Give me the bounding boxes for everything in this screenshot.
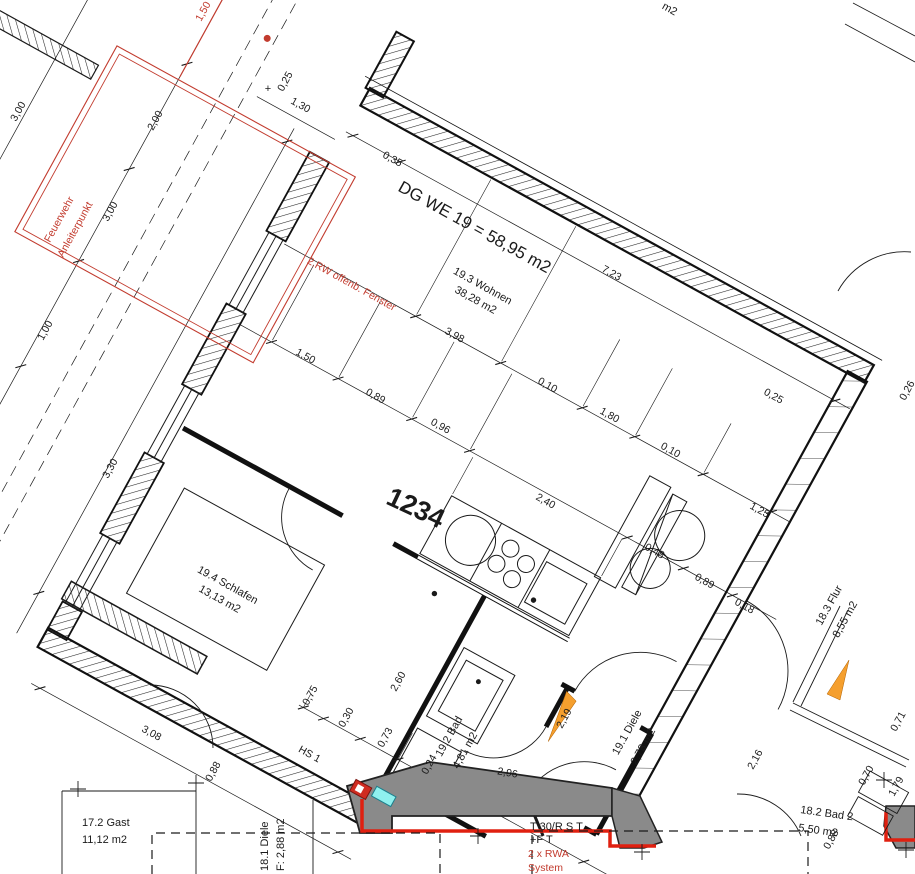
door-spec-label: T 30/R S T — [530, 821, 583, 833]
top-wall — [360, 88, 874, 383]
wall-mark-label: HS 1 — [296, 743, 322, 765]
dimension-label: 0,89 — [693, 571, 717, 591]
text-labels: DG WE 19 = 58,95 m219.3 Wohnen38,28 m219… — [8, 0, 915, 874]
dimension-lines — [0, 0, 915, 874]
bath-tub — [427, 648, 515, 744]
top-left-stub-wall — [366, 32, 414, 98]
boiler — [646, 502, 714, 570]
kitchen-sink — [437, 506, 505, 574]
dimension-label: 3,30 — [100, 457, 120, 481]
left-wall-segment — [182, 303, 246, 394]
room-area: 11,12 m2 — [82, 834, 127, 846]
dimension-label: 2,16 — [745, 748, 765, 772]
landing-wedge — [612, 788, 662, 848]
dimension-label: 0,48 — [643, 541, 667, 561]
kitchen-counter — [420, 496, 601, 636]
dimension-label: 0,75 — [300, 684, 320, 708]
dimension-label: 0,96 — [429, 416, 453, 436]
dimension-label: 0,73 — [375, 726, 395, 750]
dimension-label: 0,70 — [856, 764, 876, 788]
room-area: F: 2,88 m2 — [275, 818, 287, 871]
dimension-label: 1,00 — [35, 319, 55, 343]
dimension-label: 0,71 — [888, 710, 908, 734]
rwa-label: 2 x RWA — [528, 848, 569, 860]
dimension-label: 0,25 — [762, 386, 786, 406]
dimension-label: 2,40 — [534, 491, 558, 511]
dimension-label: 1,30 — [289, 95, 313, 115]
door-arc-schlafen — [260, 489, 341, 570]
big-mark-label: 1234 — [382, 482, 449, 535]
dimension-label: 3,00 — [8, 100, 28, 124]
door-arc-bad2 — [737, 794, 801, 836]
room-label: 18.2 Bad 2 — [800, 804, 854, 823]
dimension-label: 7,23 — [600, 263, 624, 283]
dimension-label: 0,25 — [275, 70, 295, 94]
dimension-label: 1,50 — [294, 346, 318, 366]
rwa-label: System — [528, 862, 563, 874]
left-wall-segment — [266, 152, 329, 241]
dimension-label: 0,88 — [203, 760, 223, 784]
bottom-left-wall — [38, 628, 385, 832]
door-arc-neighbor — [838, 252, 911, 291]
dimension-label: 3,00 — [100, 200, 120, 224]
survey-cross: + — [265, 83, 271, 95]
dimension-label: 0,35 — [381, 149, 405, 169]
dimension-label: 0,10 — [659, 440, 683, 460]
dimension-label: 1,79 — [886, 775, 906, 799]
dimension-label: 0,26 — [897, 379, 915, 403]
room-label: 18.1 Diele — [259, 821, 271, 871]
fire-door-marker-icon — [827, 660, 849, 700]
dimension-label: 3,98 — [443, 325, 467, 345]
dimension-label: 3,08 — [140, 723, 164, 743]
rescue-window-label: 2.RW offenb. Fenster — [305, 255, 398, 314]
floorplan-page: DG WE 19 = 58,95 m219.3 Wohnen38,28 m219… — [0, 0, 915, 874]
adjacent-structures — [0, 3, 915, 874]
void-dashed-outline — [152, 831, 808, 874]
door-spec-label: +F T — [530, 834, 553, 846]
windows — [65, 232, 283, 610]
text-fragment: m2 — [660, 0, 679, 18]
dimension-label: 2,00 — [145, 109, 165, 133]
dimension-label: 0,30 — [336, 706, 356, 730]
dimension-label: 2,60 — [388, 670, 408, 694]
rotated-plan-group — [0, 0, 915, 874]
dimension-label: 0,10 — [536, 375, 560, 395]
floorplan-canvas: DG WE 19 = 58,95 m219.3 Wohnen38,28 m219… — [0, 0, 915, 874]
room-label: 17.2 Gast — [82, 817, 130, 829]
kitchen-appliance — [524, 562, 586, 624]
